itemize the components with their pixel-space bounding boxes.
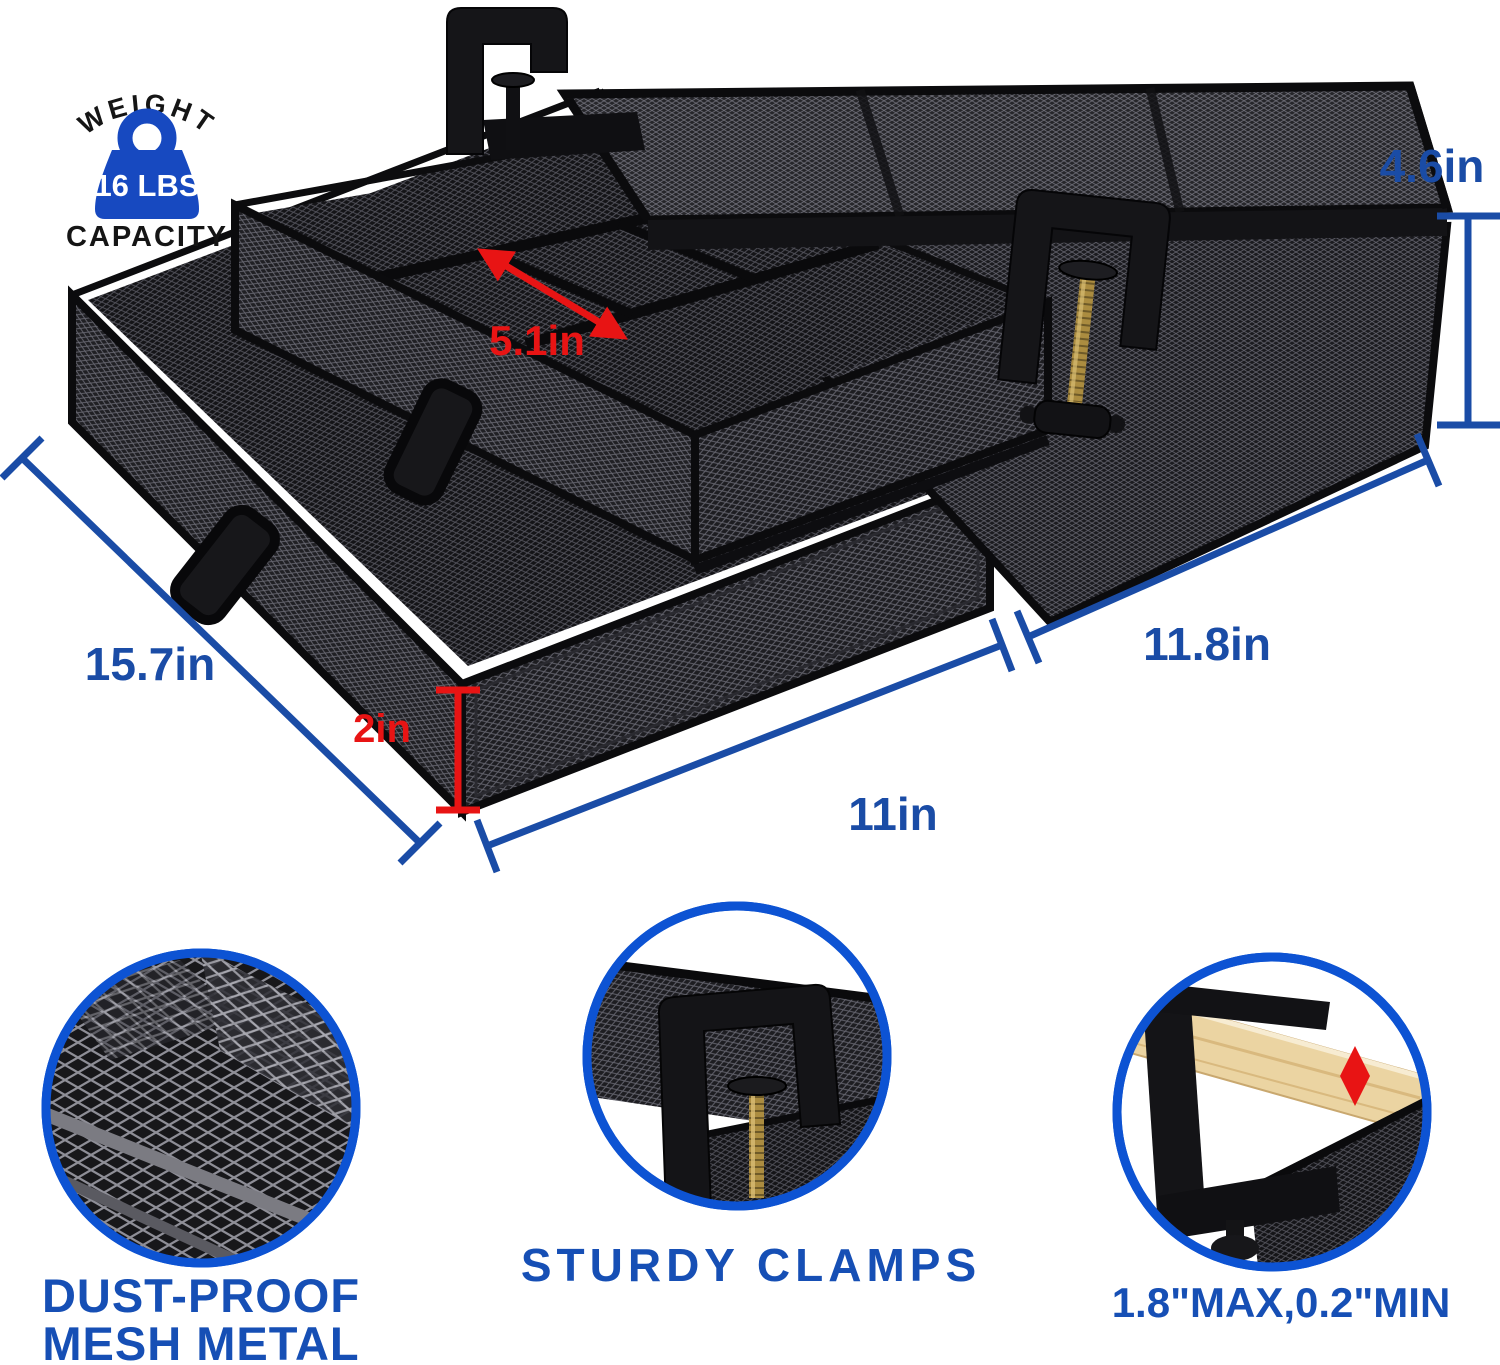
product-infographic: WEIGHT 16 LBS CAPACITY 4.6in 15.7in 11in… — [0, 0, 1500, 1365]
caption-clamp-range: 1.8"MAX,0.2"MIN — [1112, 1279, 1451, 1326]
weight-capacity-badge: WEIGHT 16 LBS CAPACITY — [66, 88, 228, 253]
top-shelf-surface — [565, 86, 1447, 220]
c-clamp-left-icon — [447, 8, 645, 160]
dim-label-drawer-height: 2in — [353, 707, 411, 751]
dim-label-top-height: 4.6in — [1380, 140, 1485, 192]
dim-label-compartment: 5.1in — [489, 317, 585, 364]
weight-caption: CAPACITY — [66, 221, 228, 253]
mesh-organizer-product — [72, 8, 1447, 812]
dim-label-top-width: 11.8in — [1143, 618, 1271, 670]
feature-circle-mesh — [40, 950, 360, 1268]
infographic-svg: WEIGHT 16 LBS CAPACITY 4.6in 15.7in 11in… — [0, 0, 1500, 1365]
feature-circle-desk-range — [1117, 957, 1428, 1267]
caption-mesh-line2: MESH METAL — [42, 1317, 359, 1365]
dim-label-depth: 15.7in — [85, 638, 215, 690]
caption-mesh-line1: DUST-PROOF — [42, 1269, 360, 1322]
top-shelf — [565, 86, 1447, 250]
weight-value: 16 LBS — [94, 168, 199, 203]
caption-clamps: STURDY CLAMPS — [521, 1239, 981, 1291]
clamp-screw-pad — [728, 1077, 786, 1095]
dim-label-drawer-width: 11in — [848, 788, 938, 840]
feature-circle-clamp — [585, 906, 890, 1212]
